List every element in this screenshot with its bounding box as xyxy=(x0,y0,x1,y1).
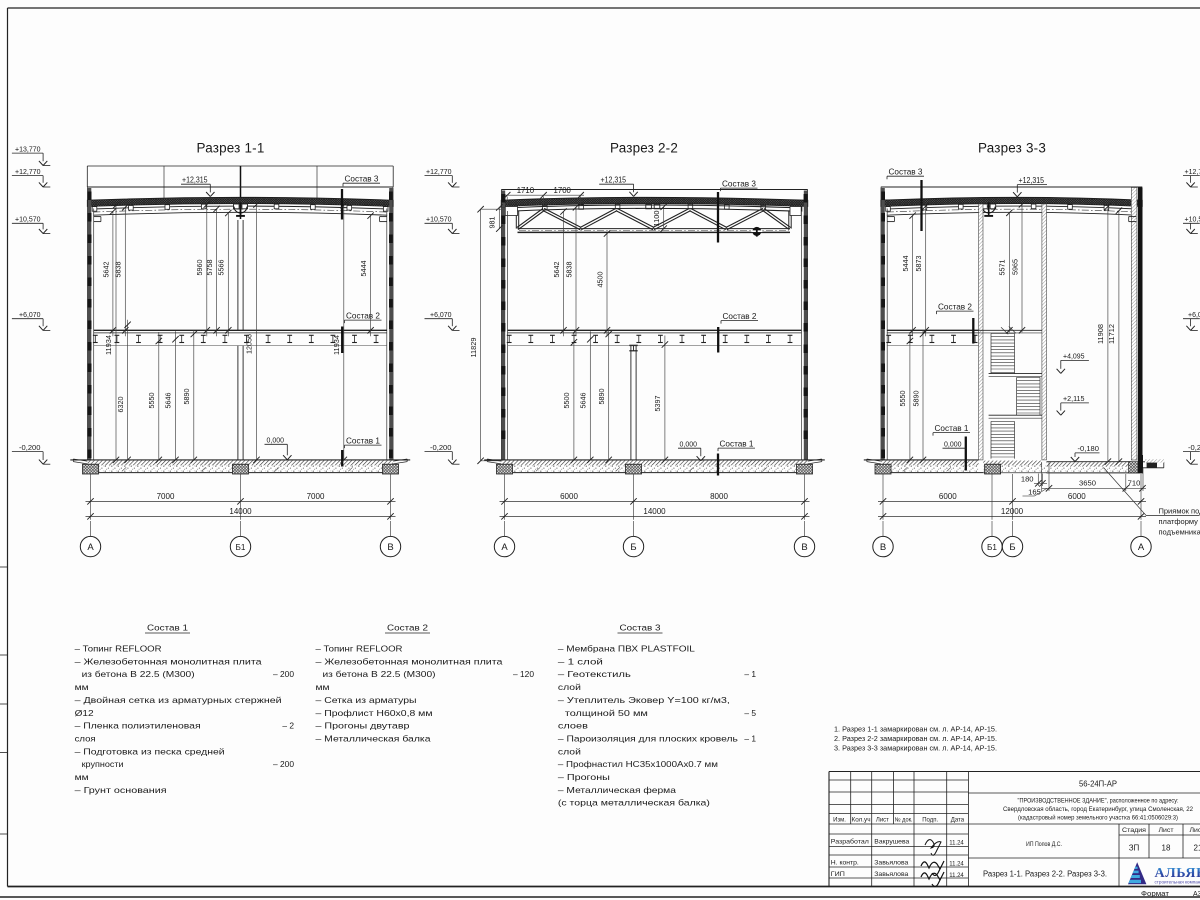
svg-text:5838: 5838 xyxy=(116,261,123,277)
svg-text:-0,200: -0,200 xyxy=(19,443,41,452)
svg-text:– Грунт основания: – Грунт основания xyxy=(75,785,167,795)
svg-text:– Металлическая балка: – Металлическая балка xyxy=(316,734,431,744)
svg-text:11.24: 11.24 xyxy=(949,862,964,868)
svg-text:Состав 1: Состав 1 xyxy=(720,438,754,448)
svg-text:+13,770: +13,770 xyxy=(15,145,41,154)
svg-text:Лист: Лист xyxy=(1159,827,1174,834)
svg-text:Состав 3: Состав 3 xyxy=(722,178,756,188)
svg-text:Н. контр.: Н. контр. xyxy=(831,861,859,867)
svg-text:+6,070: +6,070 xyxy=(1188,310,1200,319)
svg-text:Разрез 1-1. Разрез 2-2. Разрез: Разрез 1-1. Разрез 2-2. Разрез 3-3. xyxy=(983,870,1107,879)
svg-text:5550: 5550 xyxy=(900,390,907,406)
svg-text:В: В xyxy=(880,542,886,553)
svg-text:+12,770: +12,770 xyxy=(15,167,41,176)
svg-text:– 5: – 5 xyxy=(744,708,756,718)
svg-text:– Пленка полиэтиленовая: – Пленка полиэтиленовая xyxy=(75,721,201,731)
svg-text:11934: 11934 xyxy=(106,335,113,355)
svg-text:5890: 5890 xyxy=(913,390,920,406)
svg-text:+10,570: +10,570 xyxy=(15,215,41,224)
svg-text:Вакрушева: Вакрушева xyxy=(874,840,910,846)
svg-text:5646: 5646 xyxy=(581,392,588,408)
svg-text:Подп.: Подп. xyxy=(922,818,938,824)
svg-text:мм: мм xyxy=(75,772,89,782)
svg-text:11829: 11829 xyxy=(471,337,478,357)
svg-text:+10,570: +10,570 xyxy=(426,215,452,224)
svg-text:5890: 5890 xyxy=(184,388,191,404)
svg-text:+6,070: +6,070 xyxy=(430,310,452,319)
svg-text:Разрез 1-1: Разрез 1-1 xyxy=(197,141,265,156)
svg-text:В: В xyxy=(387,542,393,553)
svg-text:В: В xyxy=(801,542,807,553)
svg-text:А: А xyxy=(1138,542,1145,553)
svg-text:5642: 5642 xyxy=(554,261,561,277)
svg-text:ЗП: ЗП xyxy=(1129,844,1140,853)
svg-text:– Топинг REFLOOR: – Топинг REFLOOR xyxy=(75,644,162,654)
svg-text:0,000: 0,000 xyxy=(680,439,698,448)
svg-text:– Железобетонная монолитная п: – Железобетонная монолитная плита xyxy=(75,656,262,666)
svg-text:– Мембрана ПВХ PLASTFOIL: – Мембрана ПВХ PLASTFOIL xyxy=(558,644,695,654)
svg-text:– Профнастил НС35х1000Ах0.7 мм: – Профнастил НС35х1000Ах0.7 мм xyxy=(558,759,718,769)
svg-text:5397: 5397 xyxy=(655,395,662,411)
svg-text:21: 21 xyxy=(1194,844,1200,853)
svg-text:Завьялова: Завьялова xyxy=(874,872,909,878)
svg-text:710: 710 xyxy=(1128,479,1141,488)
svg-text:11908: 11908 xyxy=(1098,324,1105,344)
svg-text:-0,180: -0,180 xyxy=(1078,444,1100,453)
svg-text:Разрез 2-2: Разрез 2-2 xyxy=(610,141,678,156)
svg-text:5444: 5444 xyxy=(361,260,368,276)
svg-text:5566: 5566 xyxy=(219,259,226,275)
svg-text:+6,070: +6,070 xyxy=(19,310,41,319)
svg-text:11.24: 11.24 xyxy=(949,841,964,847)
svg-text:– Профлист Н60х0,8 мм: – Профлист Н60х0,8 мм xyxy=(316,708,433,718)
svg-text:56-24П-АР: 56-24П-АР xyxy=(1079,780,1117,789)
svg-text:1710: 1710 xyxy=(517,186,535,195)
svg-text:А: А xyxy=(87,542,94,553)
svg-text:Состав 2: Состав 2 xyxy=(346,310,380,320)
svg-text:ГИП: ГИП xyxy=(831,872,845,878)
svg-text:11934: 11934 xyxy=(334,335,341,355)
svg-text:+12,315: +12,315 xyxy=(601,176,627,185)
svg-text:Разрез 3-3: Разрез 3-3 xyxy=(978,141,1046,156)
svg-text:подъемника: подъемника xyxy=(1159,527,1200,536)
svg-text:6000: 6000 xyxy=(939,492,957,501)
svg-text:№ док.: № док. xyxy=(895,817,913,824)
svg-text:– Двойная сетка из арматурных: – Двойная сетка из арматурных стержней xyxy=(75,695,282,705)
svg-text:-0,200: -0,200 xyxy=(430,443,452,452)
svg-text:слоя: слоя xyxy=(75,734,96,744)
svg-text:5873: 5873 xyxy=(916,255,923,271)
svg-text:Кол.уч: Кол.уч xyxy=(852,818,871,824)
svg-text:Изм.: Изм. xyxy=(833,818,846,824)
svg-text:5960: 5960 xyxy=(197,259,204,275)
svg-text:+12,770: +12,770 xyxy=(1185,167,1200,176)
svg-text:0,000: 0,000 xyxy=(267,436,285,445)
svg-text:"ПРОИЗВОДСТВЕННОЕ ЗДАНИЕ", рас: "ПРОИЗВОДСТВЕННОЕ ЗДАНИЕ", расположенное… xyxy=(1018,797,1179,804)
svg-text:Состав 3: Состав 3 xyxy=(889,167,923,177)
svg-text:0,000: 0,000 xyxy=(944,439,962,448)
svg-text:А3: А3 xyxy=(1193,891,1200,898)
svg-text:1100: 1100 xyxy=(654,210,661,226)
svg-text:+10,570: +10,570 xyxy=(1185,215,1200,224)
svg-text:Завьялова: Завьялова xyxy=(874,861,909,867)
svg-text:А: А xyxy=(501,542,508,553)
svg-text:Состав 3: Состав 3 xyxy=(345,174,379,184)
svg-text:Состав 3: Состав 3 xyxy=(620,623,661,633)
svg-text:1. Разрез 1-1 замаркирован см.: 1. Разрез 1-1 замаркирован см. л. АР-14,… xyxy=(834,725,997,734)
svg-text:Состав 2: Состав 2 xyxy=(387,623,428,633)
svg-text:– 2: – 2 xyxy=(282,721,294,731)
svg-text:14000: 14000 xyxy=(643,507,666,516)
svg-text:7000: 7000 xyxy=(307,492,325,501)
svg-text:5550: 5550 xyxy=(149,392,156,408)
svg-text:12000: 12000 xyxy=(1001,507,1024,516)
svg-text:14000: 14000 xyxy=(229,507,252,516)
svg-text:– 200: – 200 xyxy=(273,759,294,769)
svg-text:2. Разрез 2-2 замаркирован см.: 2. Разрез 2-2 замаркирован см. л. АР-14,… xyxy=(834,734,997,743)
svg-text:Ø12: Ø12 xyxy=(75,708,94,718)
svg-text:3. Разрез 3-3 замаркирован см.: 3. Разрез 3-3 замаркирован см. л. АР-14,… xyxy=(834,744,997,753)
svg-text:5500: 5500 xyxy=(564,392,571,408)
svg-text:из бетона В 22.5 (М300): из бетона В 22.5 (М300) xyxy=(323,669,436,679)
svg-text:– Утеплитель Эковер Y=100 кг/м: – Утеплитель Эковер Y=100 кг/м3, xyxy=(558,695,730,705)
svg-text:Б1: Б1 xyxy=(987,543,997,552)
svg-text:– Подготовка из песка средней: – Подготовка из песка средней xyxy=(75,746,225,756)
svg-text:8000: 8000 xyxy=(710,492,728,501)
svg-text:ИП Попов Д.С.: ИП Попов Д.С. xyxy=(1026,841,1062,848)
svg-text:– Прогоны: – Прогоны xyxy=(558,772,610,782)
svg-text:Б: Б xyxy=(630,542,636,553)
svg-text:Состав 2: Состав 2 xyxy=(938,301,972,311)
svg-text:слой: слой xyxy=(558,682,581,692)
svg-text:+12,315: +12,315 xyxy=(1019,176,1045,185)
svg-text:толщиной 50 мм: толщиной 50 мм xyxy=(565,708,648,718)
svg-text:5758: 5758 xyxy=(207,259,214,275)
svg-text:18: 18 xyxy=(1162,844,1171,853)
svg-text:– Пароизоляция для плоских кро: – Пароизоляция для плоских кровель xyxy=(558,734,739,744)
svg-text:6000: 6000 xyxy=(1068,492,1086,501)
svg-text:мм: мм xyxy=(75,682,89,692)
svg-text:5571: 5571 xyxy=(1000,259,1007,275)
svg-text:+12,770: +12,770 xyxy=(426,167,452,176)
svg-text:крупности: крупности xyxy=(82,759,124,769)
svg-text:5642: 5642 xyxy=(103,261,110,277)
svg-text:(с торца металлическая балка): (с торца металлическая балка) xyxy=(558,798,710,808)
svg-text:165: 165 xyxy=(1028,487,1041,496)
svg-text:Состав 1: Состав 1 xyxy=(346,435,380,445)
svg-text:180: 180 xyxy=(1021,474,1034,483)
svg-text:из бетона В 22.5 (М300): из бетона В 22.5 (М300) xyxy=(82,669,195,679)
svg-text:– 1: – 1 xyxy=(744,669,756,679)
svg-text:5838: 5838 xyxy=(566,261,573,277)
svg-text:– 200: – 200 xyxy=(273,669,294,679)
svg-text:(кадастровый номер земельного: (кадастровый номер земельного участка 66… xyxy=(1018,814,1178,822)
svg-text:-0,200: -0,200 xyxy=(1188,443,1200,452)
svg-text:5965: 5965 xyxy=(1012,259,1019,275)
svg-text:Состав 2: Состав 2 xyxy=(723,311,757,321)
svg-text:– 1 слой: – 1 слой xyxy=(558,656,603,666)
svg-text:5890: 5890 xyxy=(599,388,606,404)
svg-text:3650: 3650 xyxy=(1079,479,1096,488)
svg-text:Состав 1: Состав 1 xyxy=(935,423,969,433)
svg-text:6000: 6000 xyxy=(560,492,578,501)
svg-text:– Прогоны двутавр: – Прогоны двутавр xyxy=(316,721,410,731)
svg-text:+2,115: +2,115 xyxy=(1063,394,1085,403)
svg-text:4500: 4500 xyxy=(597,271,604,287)
svg-text:мм: мм xyxy=(316,682,330,692)
svg-text:Разработал: Разработал xyxy=(831,840,870,846)
svg-text:Формат: Формат xyxy=(1141,891,1170,898)
svg-text:6320: 6320 xyxy=(118,396,125,412)
svg-text:Лист: Лист xyxy=(1190,827,1200,834)
svg-text:– Геотекстиль: – Геотекстиль xyxy=(558,669,632,679)
svg-text:Дата: Дата xyxy=(951,818,965,824)
svg-text:– 1: – 1 xyxy=(744,734,756,744)
svg-text:Б: Б xyxy=(1009,542,1015,553)
svg-text:12056: 12056 xyxy=(247,334,254,354)
svg-text:Состав 1: Состав 1 xyxy=(147,623,188,633)
svg-text:слой: слой xyxy=(558,746,581,756)
svg-text:Приямок под: Приямок под xyxy=(1159,506,1200,515)
svg-text:Стадия: Стадия xyxy=(1122,827,1146,834)
svg-text:– Железобетонная монолитная п: – Железобетонная монолитная плита xyxy=(316,656,503,666)
svg-text:Лист: Лист xyxy=(876,818,889,824)
svg-text:5646: 5646 xyxy=(166,392,173,408)
svg-text:1700: 1700 xyxy=(554,186,572,195)
svg-text:+12,315: +12,315 xyxy=(182,176,208,185)
svg-text:+4,095: +4,095 xyxy=(1063,352,1085,361)
svg-text:Б1: Б1 xyxy=(236,543,246,552)
svg-text:– Металлическая ферма: – Металлическая ферма xyxy=(558,785,676,795)
svg-text:– Сетка из арматуры: – Сетка из арматуры xyxy=(316,695,417,705)
svg-text:Свердловская область, город Ек: Свердловская область, город Екатеринбург… xyxy=(1003,805,1193,813)
svg-text:981: 981 xyxy=(490,216,497,228)
svg-text:слоев: слоев xyxy=(558,721,589,731)
svg-text:5444: 5444 xyxy=(903,255,910,271)
svg-text:11.24: 11.24 xyxy=(949,873,964,879)
svg-text:11712: 11712 xyxy=(1109,324,1116,344)
svg-text:7000: 7000 xyxy=(157,492,175,501)
svg-text:– Топинг REFLOOR: – Топинг REFLOOR xyxy=(316,644,403,654)
svg-text:строительная компания: строительная компания xyxy=(1155,879,1200,884)
svg-text:– 120: – 120 xyxy=(513,669,534,679)
svg-text:платформу: платформу xyxy=(1159,517,1199,526)
